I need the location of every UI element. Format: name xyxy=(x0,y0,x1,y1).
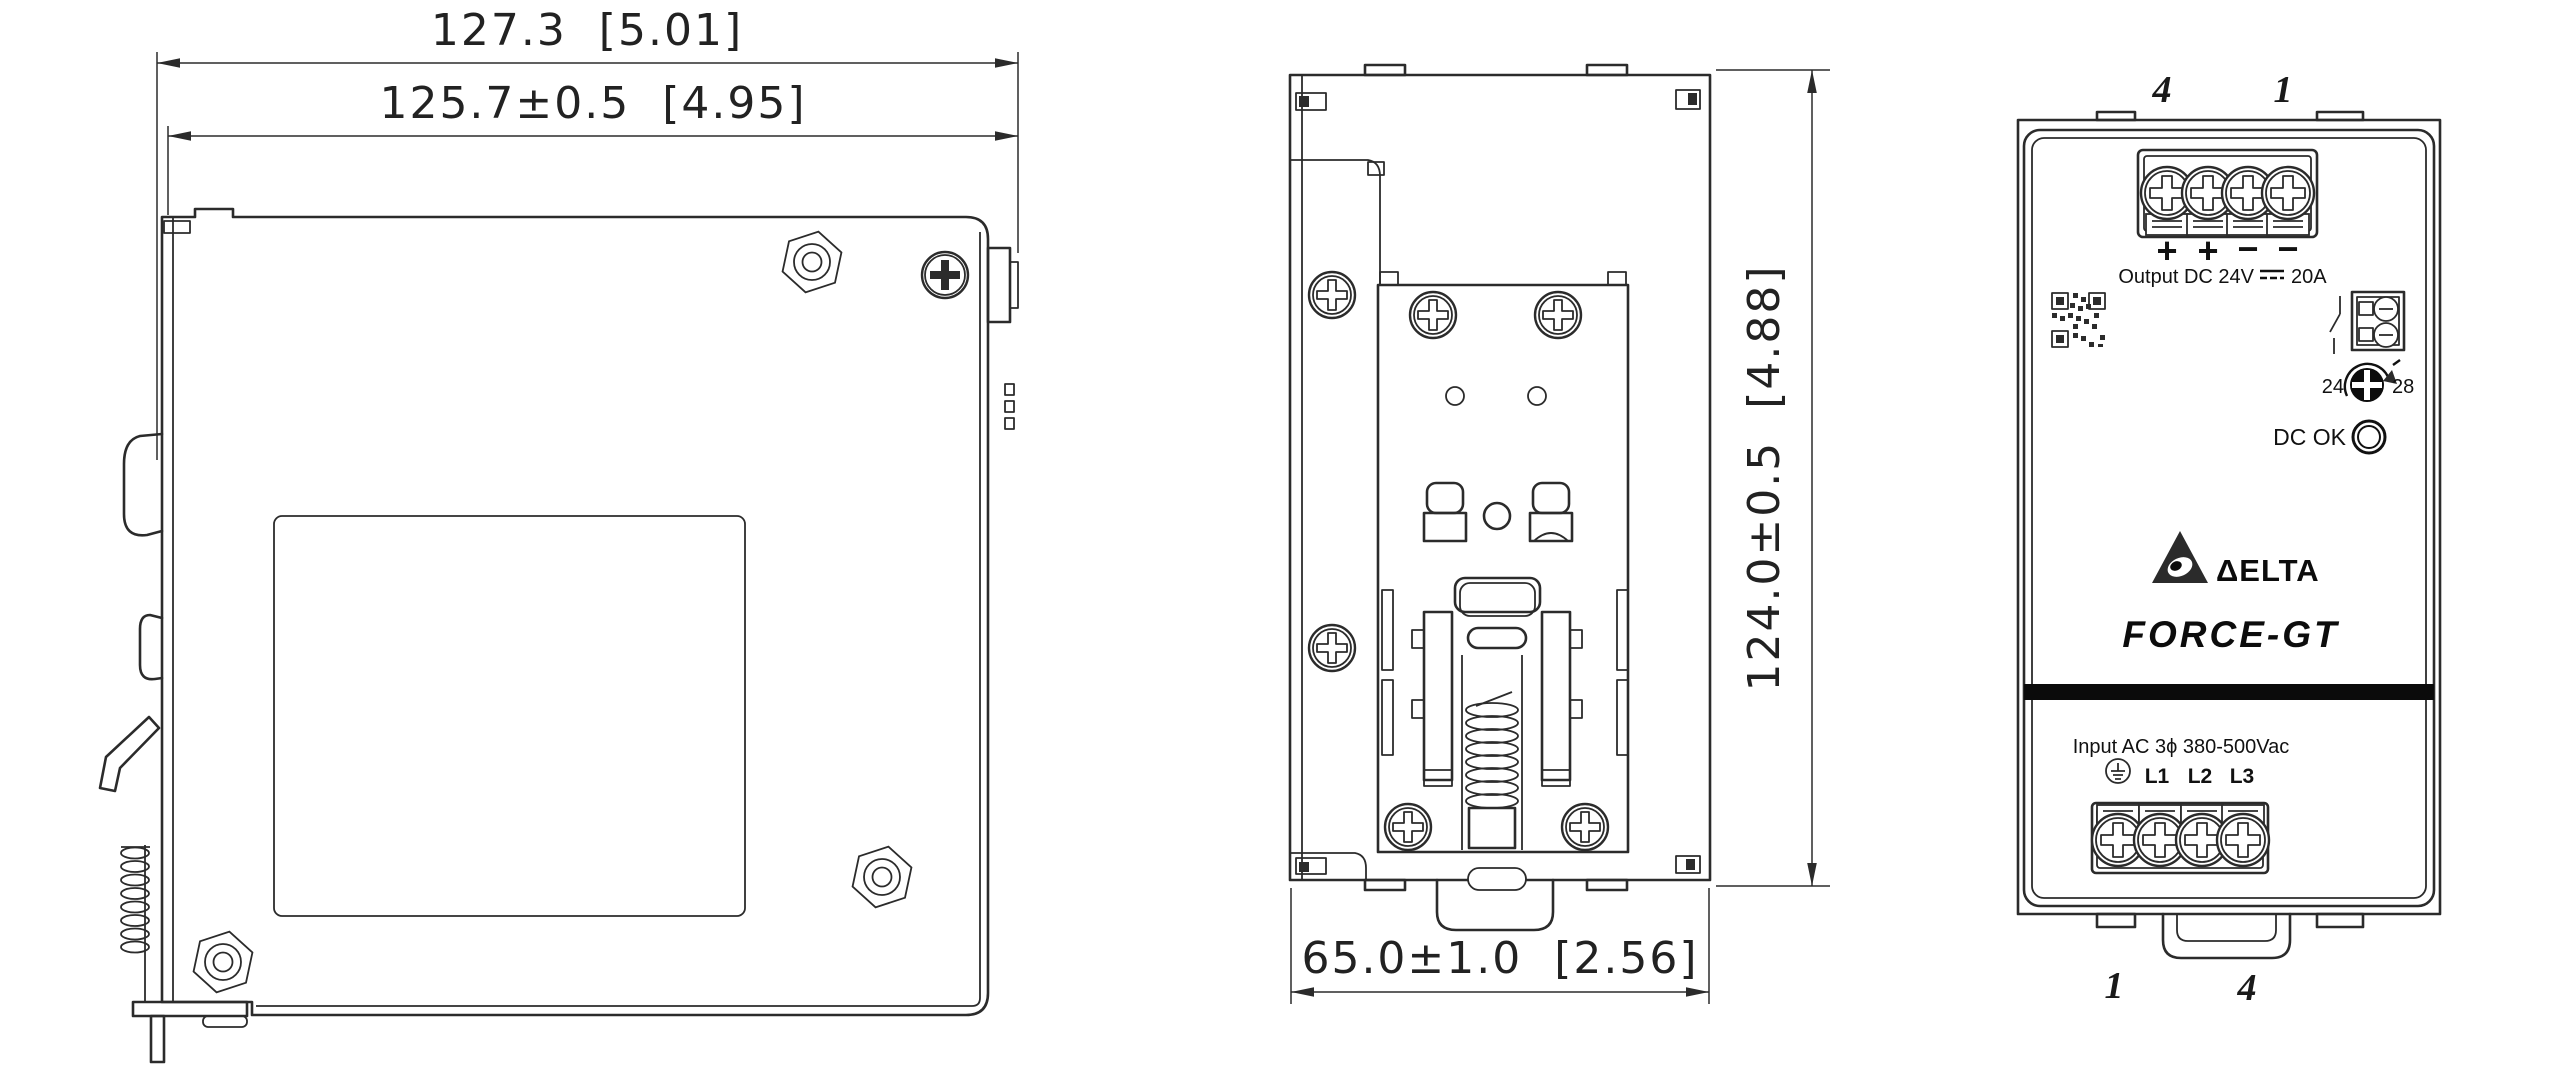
marker-top-right: 1 xyxy=(2274,69,2293,111)
output-rating-label: Output DC 24V xyxy=(2118,266,2254,288)
front-view: 4 1 1 4 + + − xyxy=(2018,69,2440,1009)
terminal-l3-label: L3 xyxy=(2230,765,2255,788)
rear-dim-width: 65.0±1.0 [2.56] xyxy=(1291,888,1709,1004)
technical-drawing-page: 127.3 [5.01] 125.7±0.5 [4.95] xyxy=(0,0,2560,1067)
rear-view: 124.0±0.5 [4.88] 65.0±1.0 [2.56] xyxy=(1290,65,1830,1004)
terminal-l2-label: L2 xyxy=(2188,765,2213,788)
hex-standoff-bottom-right xyxy=(849,841,914,913)
rear-body-outline xyxy=(1290,75,1710,880)
signal-connector xyxy=(2352,292,2404,350)
polarity-plus-2: + xyxy=(2197,230,2218,271)
hex-standoff-top xyxy=(779,226,844,298)
terminal-l1-label: L1 xyxy=(2145,765,2170,788)
plate-center-hole xyxy=(1484,503,1510,529)
relay-contact-icon xyxy=(2330,296,2340,354)
rear-screw-flange-top xyxy=(1309,272,1355,318)
plate-hole-left xyxy=(1446,387,1464,405)
plate-hole-right xyxy=(1528,387,1546,405)
front-din-clip-bottom xyxy=(2163,914,2290,958)
side-right-connector-tab xyxy=(988,248,1018,429)
rear-screw-plate-right xyxy=(1535,292,1581,338)
side-top-left-step xyxy=(164,221,190,233)
rear-screw-flange-mid xyxy=(1309,625,1355,671)
rear-dim-height: 124.0±0.5 [4.88] xyxy=(1716,70,1830,886)
din-mounting-plate xyxy=(1378,272,1628,852)
input-rating-label: Input AC 3ϕ 380-500Vac xyxy=(2073,736,2290,758)
din-clip-mechanism xyxy=(1412,578,1582,850)
plate-clip-hooks xyxy=(1424,483,1572,541)
side-dim-overall-label: 127.3 [5.01] xyxy=(431,5,743,56)
side-dim-body-label: 125.7±0.5 [4.95] xyxy=(379,78,806,129)
dc-ok-led xyxy=(2353,421,2385,453)
input-terminal-block xyxy=(2092,803,2269,873)
rear-dim-height-label: 124.0±0.5 [4.88] xyxy=(1739,264,1790,691)
rear-screw-bottom-left xyxy=(1385,804,1431,850)
marker-bottom-left: 1 xyxy=(2105,965,2124,1007)
din-foot-plate xyxy=(133,1002,247,1016)
polarity-minus-1: − xyxy=(2237,228,2258,269)
din-spring-rear xyxy=(1466,703,1518,808)
polarity-plus-1: + xyxy=(2156,230,2177,271)
rear-screw-bottom-right xyxy=(1562,804,1608,850)
clip-slot xyxy=(1468,628,1526,648)
rear-screw-plate-left xyxy=(1410,292,1456,338)
clip-tab-slot xyxy=(1468,868,1526,890)
rear-dim-width-label: 65.0±1.0 [2.56] xyxy=(1301,933,1698,984)
rear-mount-tabs xyxy=(1365,65,1627,890)
din-release-lever xyxy=(100,717,159,791)
earth-ground-icon xyxy=(2106,759,2130,783)
dc-symbol-icon xyxy=(2260,271,2284,278)
side-view: 127.3 [5.01] 125.7±0.5 [4.95] xyxy=(100,5,1018,1062)
output-screw-4 xyxy=(2262,167,2314,219)
input-screw-l3 xyxy=(2217,814,2269,866)
delta-logo-icon xyxy=(2152,531,2208,583)
marker-bottom-center: 4 xyxy=(2237,967,2257,1009)
hex-standoff-bottom-left xyxy=(190,926,255,998)
dc-ok-label: DC OK xyxy=(2273,424,2347,450)
brand-wordmark: ΔELTA xyxy=(2216,553,2320,588)
separator-band xyxy=(2024,684,2434,700)
drawing-canvas: 127.3 [5.01] 125.7±0.5 [4.95] xyxy=(0,0,2560,1067)
spring-seat xyxy=(1469,808,1515,848)
adjust-min-label: 24 xyxy=(2322,376,2344,398)
output-terminal-block xyxy=(2138,150,2317,237)
front-cover-outline xyxy=(2024,130,2434,906)
phillips-screw-top-right xyxy=(922,252,968,298)
qr-code-icon xyxy=(2052,293,2105,347)
bottom-bump xyxy=(203,1016,247,1027)
model-name: FORCE-GT xyxy=(2122,614,2340,655)
output-current-label: 20A xyxy=(2291,266,2327,288)
polarity-minus-2: − xyxy=(2277,228,2298,269)
din-pin xyxy=(151,1016,164,1062)
adjust-max-label: 28 xyxy=(2392,376,2414,398)
marker-top-left: 4 xyxy=(2152,69,2172,111)
side-label-area xyxy=(274,516,745,916)
front-chassis-outline xyxy=(2018,120,2440,914)
